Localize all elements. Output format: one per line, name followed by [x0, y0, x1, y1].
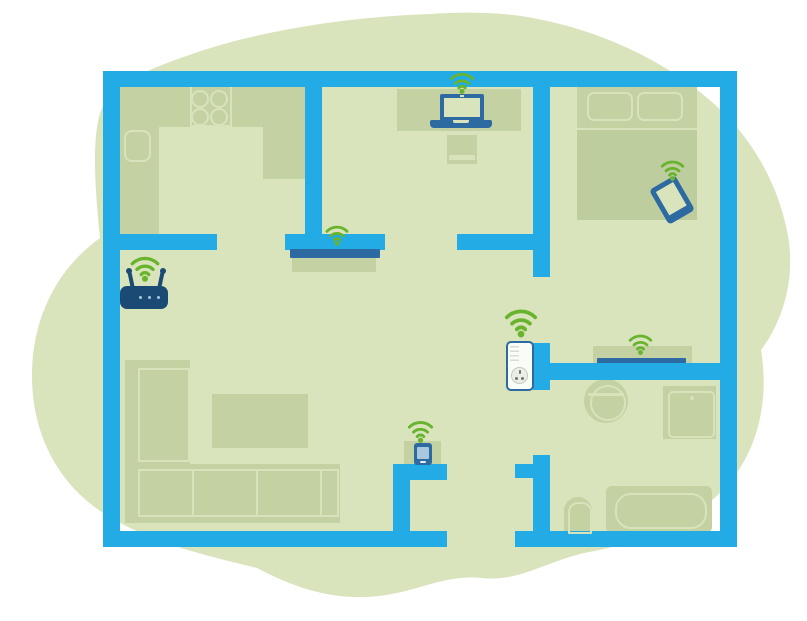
wall-bathroom — [550, 363, 720, 380]
sofa-cushion — [138, 368, 190, 462]
wall-bottom-left — [103, 531, 447, 547]
socket-slot — [519, 370, 521, 374]
wall-bedroom-divider — [533, 87, 550, 277]
washbasin-ring — [590, 385, 626, 421]
wall-kitchen-bottom — [120, 234, 217, 250]
wifi-icon-media-shelf — [625, 330, 656, 356]
kitchen-counter-top — [159, 87, 305, 127]
wifi-icon-smartphone — [657, 156, 688, 182]
wall-kitchen-divider — [305, 87, 322, 250]
wall-bathroom-lower — [533, 455, 550, 547]
laptop-base-notch — [453, 120, 469, 123]
router-led — [157, 296, 160, 299]
wifi-icon-smart-device — [404, 416, 437, 444]
laptop-screen — [440, 94, 484, 121]
sofa-cushion — [138, 469, 194, 517]
sofa-cushion — [192, 469, 258, 517]
smart-device-button — [420, 461, 426, 463]
stove-burner — [210, 90, 228, 108]
wall-left — [103, 71, 120, 547]
shower-head-dot — [690, 396, 694, 400]
wifi-icon-laptop — [446, 68, 478, 95]
wall-hall-lip — [393, 464, 447, 480]
toilet-bowl — [568, 502, 592, 534]
wifi-icon-tv — [322, 221, 352, 247]
socket-pin — [515, 377, 518, 380]
sofa-cushion — [320, 469, 339, 517]
wifi-icon-router — [126, 251, 164, 283]
stove-burner — [191, 90, 209, 108]
extender-vents — [510, 346, 519, 362]
bathtub-basin — [615, 493, 707, 529]
floor-plan — [0, 0, 807, 621]
pillow — [587, 92, 633, 121]
wall-socket-post — [533, 343, 550, 390]
router-led — [148, 296, 151, 299]
wall-hall-post — [393, 480, 410, 531]
laptop-camera-dot — [460, 95, 464, 97]
stove-burner — [210, 108, 228, 126]
coffee-table — [212, 394, 308, 448]
office-chair-seat — [449, 155, 475, 160]
smart-device-screen — [417, 447, 429, 459]
router-led — [139, 296, 142, 299]
wall-right — [720, 71, 737, 547]
kitchen-counter-corner — [263, 127, 305, 179]
wifi-icon-extender — [500, 303, 542, 339]
wall-door-stub — [515, 464, 533, 478]
stove-burner — [191, 108, 209, 126]
pillow — [637, 92, 683, 121]
wifi-router — [120, 286, 168, 309]
wall-top — [103, 71, 737, 87]
socket-pin — [521, 377, 524, 380]
sink — [124, 130, 151, 162]
washbasin-edge — [588, 393, 624, 396]
sofa-cushion — [256, 469, 322, 517]
tv-screen — [290, 249, 380, 258]
